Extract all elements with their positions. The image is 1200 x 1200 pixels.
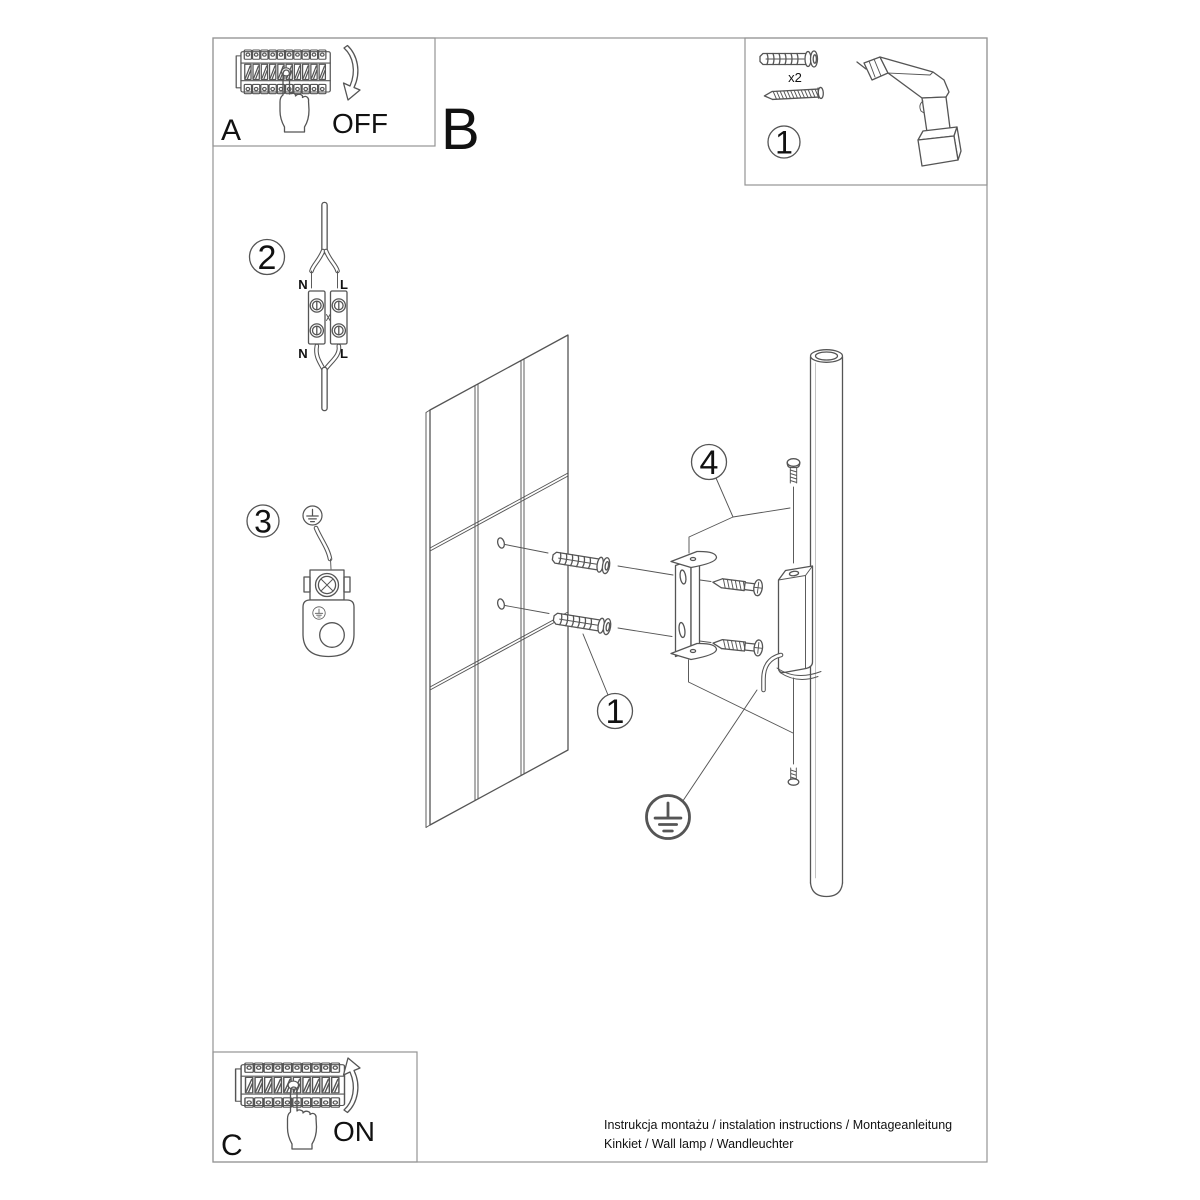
tube-mounting-block [777, 566, 821, 679]
mounting-screw-icon [712, 574, 763, 596]
step-ground: 3 [247, 504, 354, 657]
callout-leader [689, 478, 794, 733]
ground-leader [684, 690, 758, 800]
lamp-tube [811, 350, 843, 897]
arrow-up-icon [344, 1058, 361, 1113]
footer-line2: Kinkiet / Wall lamp / Wandleuchter [604, 1137, 793, 1151]
screw-icon [764, 87, 823, 101]
ground-symbol-icon [313, 607, 325, 619]
off-label: OFF [332, 108, 388, 139]
label-n-top: N [298, 277, 307, 292]
instruction-sheet: B A OFF x2 1 2 [0, 0, 1200, 1200]
footer: Instrukcja montażu / instalation instruc… [604, 1118, 952, 1151]
tiled-wall [426, 335, 568, 828]
section-letter-b: B [441, 97, 480, 162]
step-wiring: 2 N L N L [250, 205, 349, 408]
label-n-bottom: N [298, 346, 307, 361]
wall-plug-icon [552, 610, 611, 635]
box-c-power-on: C ON [221, 1058, 375, 1162]
ground-symbol-icon [303, 506, 322, 525]
step2-number: 2 [258, 239, 277, 277]
ground-symbol-icon [647, 796, 690, 839]
step3-number: 3 [254, 504, 272, 540]
main-diagram: 1 [426, 335, 843, 897]
drill-hole [497, 598, 506, 610]
main-callout-4: 4 [700, 444, 719, 482]
small-screw-bottom [788, 768, 799, 785]
callout-leader [583, 634, 608, 695]
instruction-drawing: B A OFF x2 1 2 [0, 0, 1200, 1200]
wall-plug-icon [760, 51, 818, 67]
on-label: ON [333, 1116, 375, 1147]
mounting-bracket [671, 551, 717, 659]
mounting-screw-icon [712, 635, 763, 656]
ground-bracket-body [303, 600, 354, 657]
wall-plug-icon [551, 549, 610, 574]
box-c-letter: C [221, 1129, 243, 1162]
label-l-top: L [340, 277, 348, 292]
drill-hole [497, 537, 506, 549]
arrow-down-icon [344, 46, 361, 101]
small-screw-top [787, 459, 800, 483]
box-a-letter: A [221, 114, 241, 147]
parts-box: x2 1 [760, 51, 961, 166]
box-a-power-off: A OFF [221, 46, 388, 148]
ground-clamp [304, 570, 350, 600]
drill-icon [857, 57, 961, 166]
parts-callout-number: 1 [775, 125, 793, 161]
footer-line1: Instrukcja montażu / instalation instruc… [604, 1118, 952, 1132]
anchor-quantity: x2 [788, 70, 802, 85]
main-callout-1: 1 [606, 693, 625, 731]
